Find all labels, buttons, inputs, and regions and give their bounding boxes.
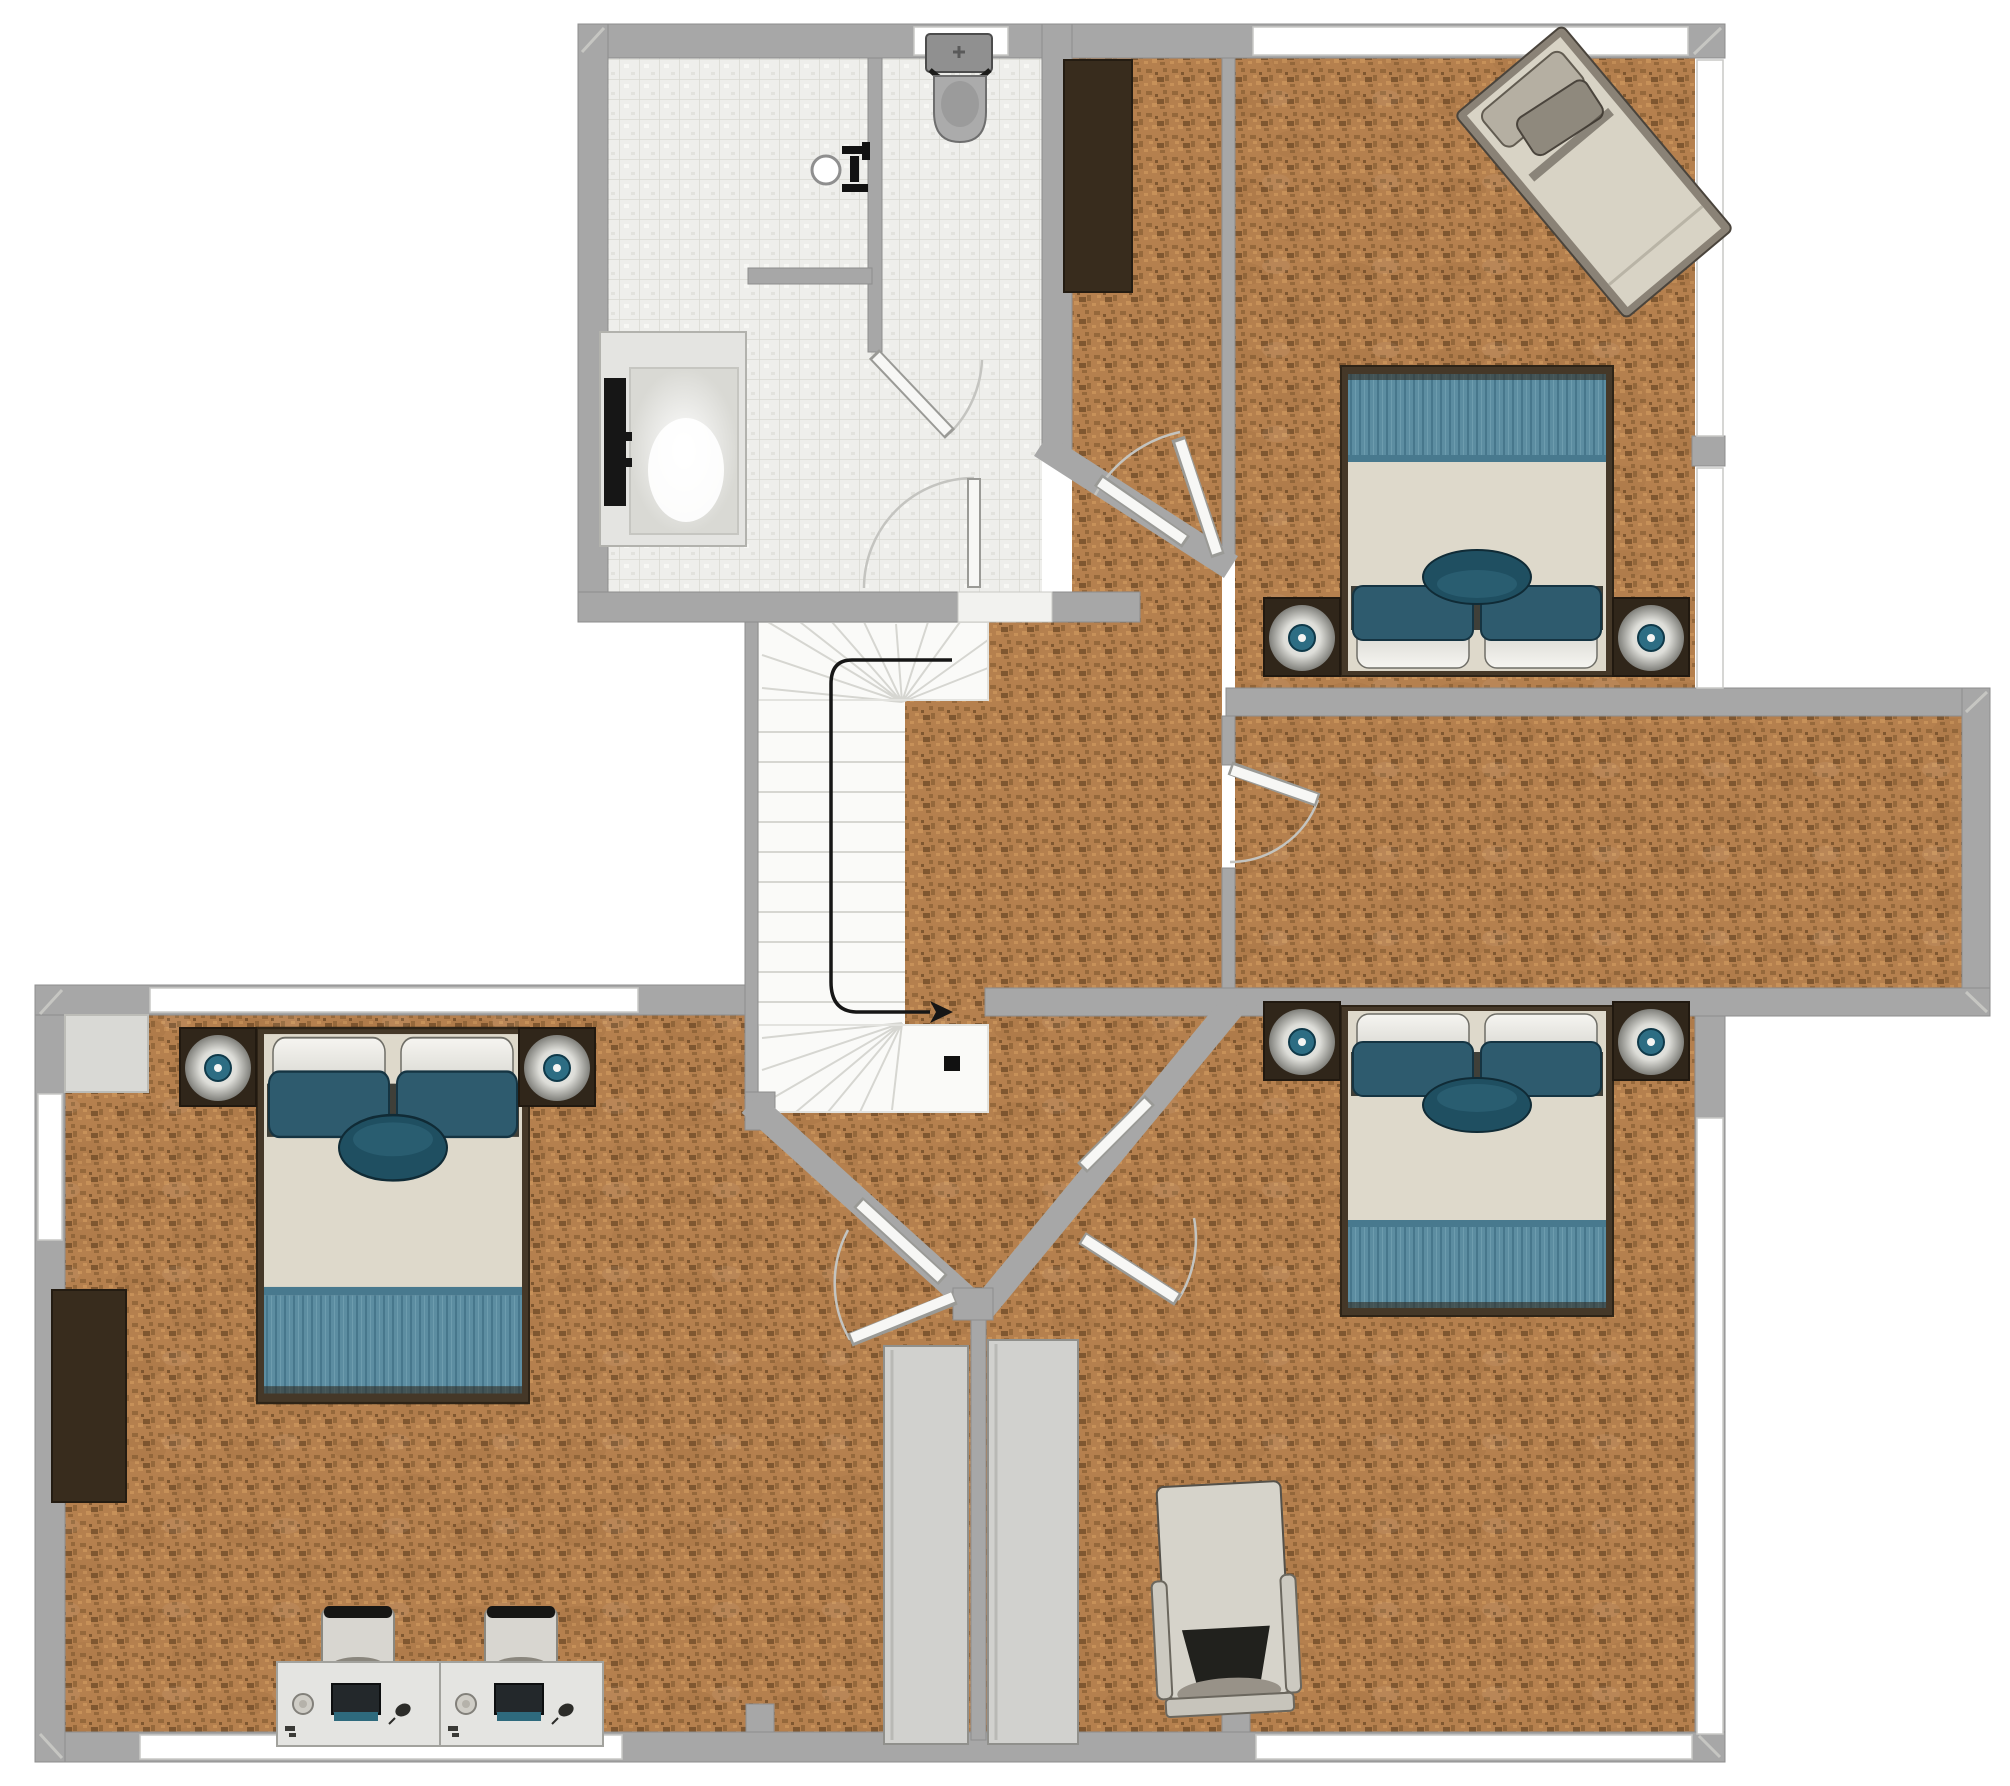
- win-right-lower: [1697, 1118, 1723, 1734]
- armchair[interactable]: [1146, 1480, 1302, 1717]
- toilet[interactable]: [926, 34, 992, 142]
- nightstand-lamp[interactable]: [1264, 598, 1340, 676]
- nightstand-lamp[interactable]: [1264, 1002, 1340, 1080]
- double-bed-bottom-left[interactable]: [257, 1028, 529, 1403]
- wall-sink-halfwall: [748, 268, 872, 284]
- wall-pier-bottom-1: [746, 1704, 774, 1732]
- shower-tub[interactable]: [600, 332, 746, 546]
- wall-stair-left: [745, 622, 758, 1115]
- win-bottom-right: [1256, 1735, 1692, 1759]
- wall-bedroom-tr-left: [1222, 58, 1235, 560]
- floor-plan-canvas: [0, 0, 2010, 1786]
- stair-notch-floor: [905, 700, 988, 1025]
- wall-bathroom-south: [578, 592, 1140, 622]
- win-top-bedroom-long: [1253, 27, 1688, 55]
- nightstand-lamp[interactable]: [519, 1028, 595, 1106]
- nightstand-lamp[interactable]: [1613, 1002, 1689, 1080]
- wall-center-divider: [971, 1300, 986, 1740]
- nightstand-lamp[interactable]: [1613, 598, 1689, 676]
- stair-marker-square: [944, 1056, 960, 1071]
- wall-wc-partition: [868, 58, 882, 352]
- double-bed-top-right[interactable]: [1341, 366, 1613, 676]
- wall-pier-right-upper: [1692, 436, 1725, 466]
- wall-y-junction: [953, 1288, 993, 1320]
- nightstand-lamp[interactable]: [180, 1028, 256, 1106]
- wall-corridor-left-a: [1222, 716, 1235, 765]
- win-right-upper-b: [1697, 468, 1723, 688]
- win-bedroom-bl-top: [150, 988, 638, 1012]
- wall-corridor-right: [1962, 688, 1990, 1016]
- double-bed-bottom-right[interactable]: [1341, 1006, 1613, 1316]
- win-left: [38, 1094, 62, 1240]
- floor-shading: [1235, 716, 1962, 988]
- floor-plan-page: [0, 0, 2010, 1786]
- wall-corridor-left-b: [1222, 868, 1235, 988]
- wall-corridor-top: [1226, 688, 1962, 716]
- bathroom-door-threshold: [958, 592, 1052, 622]
- wardrobe-dark-bedroom-bl[interactable]: [52, 1290, 126, 1502]
- corner-closet-box[interactable]: [65, 1015, 148, 1092]
- wardrobe-dark-hall[interactable]: [1064, 60, 1132, 292]
